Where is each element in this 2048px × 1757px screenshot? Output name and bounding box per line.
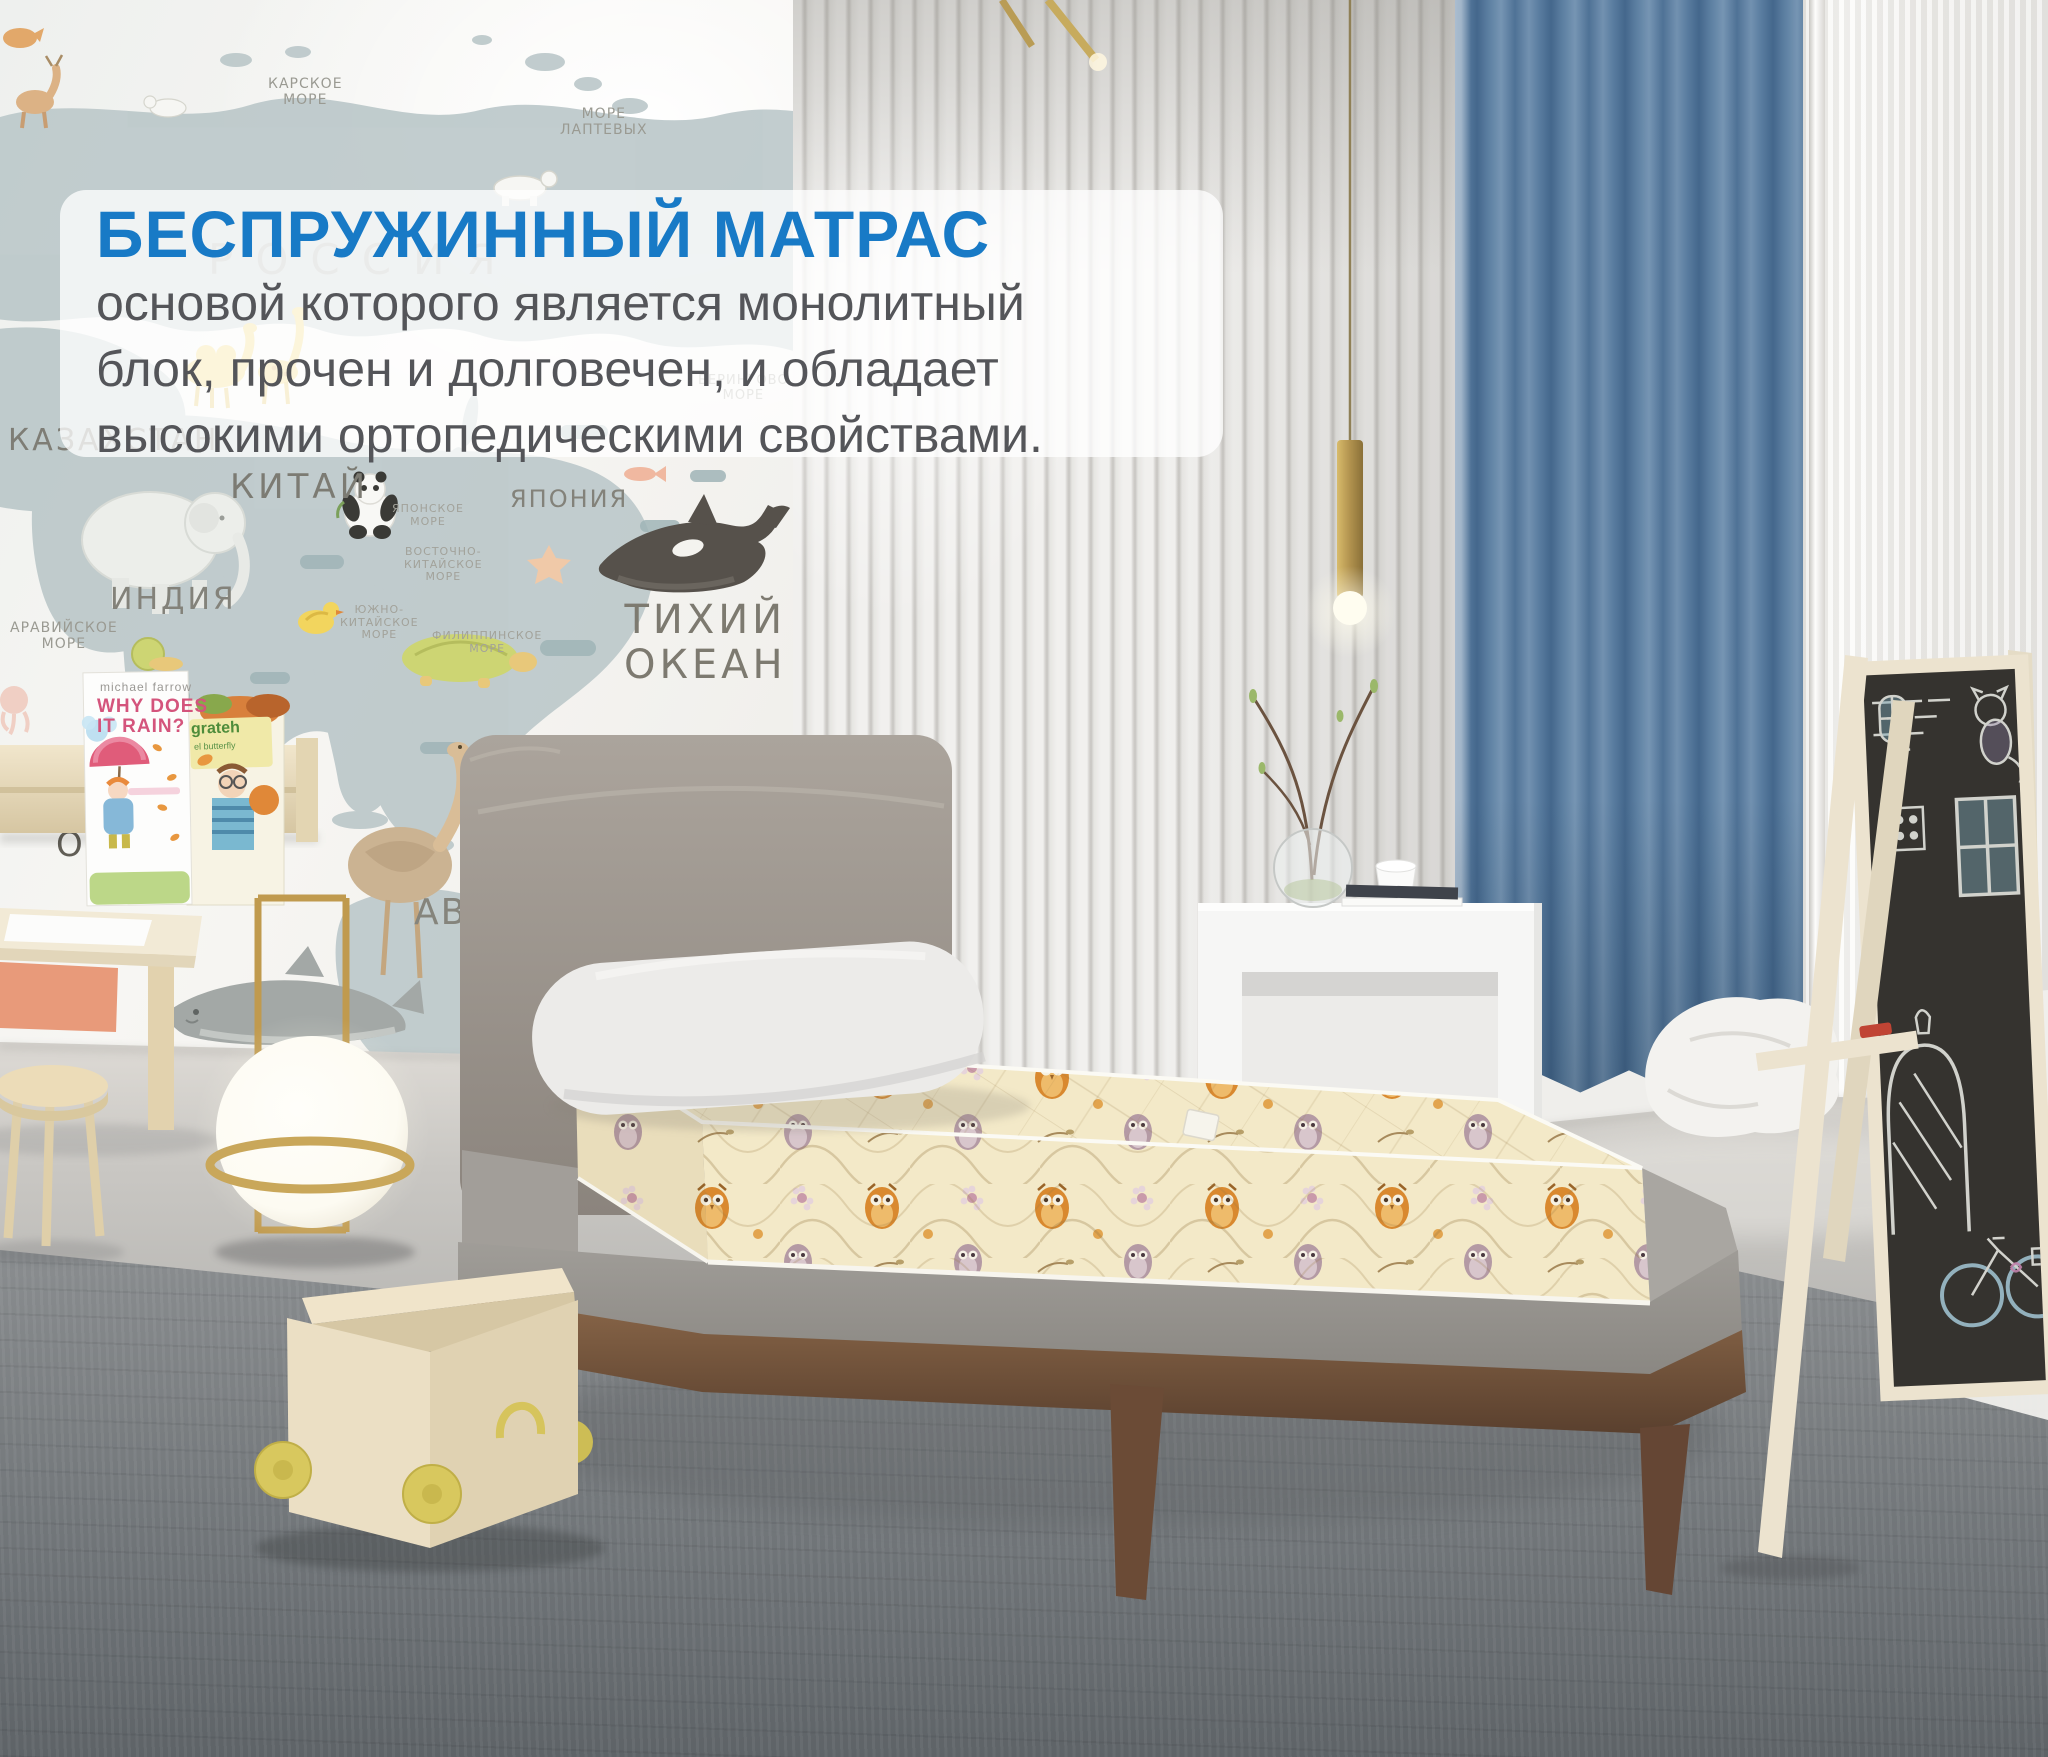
shelf-end-post (296, 738, 318, 842)
banner-text-line3: высокими ортопедическими свойствами. (96, 402, 1203, 468)
banner-text-line1: основой которого является монолитный (96, 270, 1203, 336)
pillow (527, 937, 989, 1120)
lamp-glass-sphere (216, 1036, 408, 1228)
glass-vase-with-branches (1249, 679, 1378, 907)
mattress-label-tag (1183, 1109, 1220, 1141)
desk-leg (148, 952, 174, 1130)
stool (0, 1065, 124, 1264)
toy-cart (255, 1268, 605, 1572)
bed (458, 735, 1746, 1600)
info-banner: БЕСПРУЖИННЫЙ МАТРАС основой которого явл… (60, 190, 1223, 457)
bed-leg-foot (1640, 1424, 1690, 1595)
stacked-books (1342, 885, 1462, 906)
cart-wheel-right (403, 1465, 461, 1523)
book2-title-text: grateh (191, 719, 241, 739)
pendant-light (1304, 0, 1396, 658)
ceiling-light-rods (1002, 0, 1107, 71)
book1-author-text: michael farrow (100, 680, 192, 694)
banner-text-line2: блок, прочен и долговечен, и обладает (96, 336, 1203, 402)
sphere-floor-lamp (194, 898, 430, 1268)
cart-left-face (287, 1318, 430, 1548)
product-photo-kids-bedroom: КАРСКОЕ МОРЕ МОРЕ ЛАПТЕВЫХ БЕРИНГОВО МОР… (0, 0, 2048, 1757)
desk-drawer (0, 962, 118, 1032)
cart-wheel-left (255, 1442, 311, 1498)
banner-title: БЕСПРУЖИННЫЙ МАТРАС (96, 200, 1203, 270)
book2-subtitle-text: el butterfly (194, 740, 236, 751)
